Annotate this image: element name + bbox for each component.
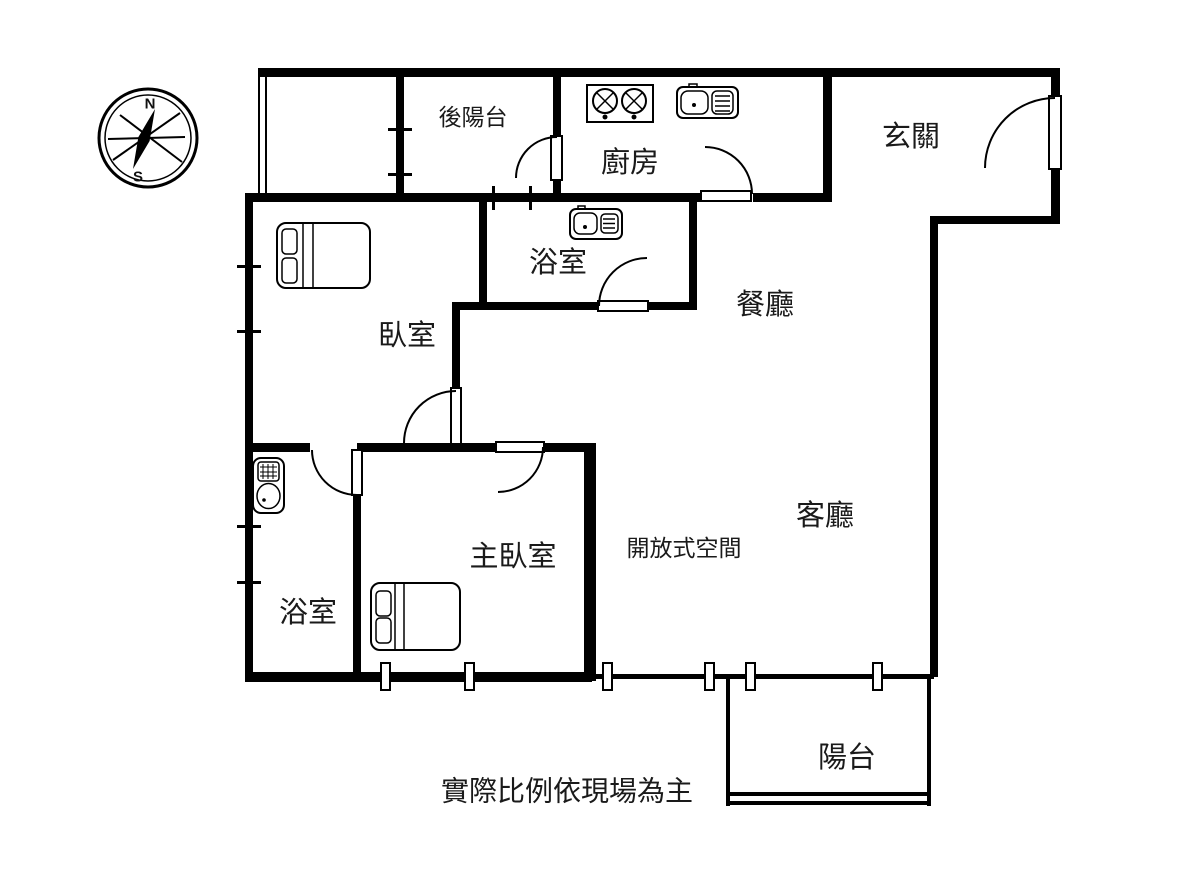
bed-icon-master-bedroom xyxy=(371,583,460,650)
room-label-open-space: 開放式空間 xyxy=(627,535,742,561)
room-label-bathroom-upper: 浴室 xyxy=(529,246,587,279)
stove-icon xyxy=(587,85,653,122)
door-master-bedroom xyxy=(496,442,544,492)
scale-disclaimer: 實際比例依現場為主 xyxy=(441,776,693,807)
door-kitchen xyxy=(701,147,752,201)
door-entrance xyxy=(985,96,1061,169)
bathroom-sink-icon xyxy=(570,206,622,239)
room-label-bedroom: 臥室 xyxy=(378,319,436,352)
compass-north-label: N xyxy=(145,96,156,113)
kitchen-sink-icon xyxy=(677,84,738,118)
compass-rose: N S xyxy=(99,89,197,187)
door-bathroom-lower xyxy=(312,450,362,495)
compass-south-label: S xyxy=(133,169,143,186)
door-back-balcony xyxy=(516,136,562,180)
room-label-kitchen: 廚房 xyxy=(601,146,659,179)
door-bedroom xyxy=(404,388,461,444)
floor-plan-drawing: N S 後陽台 廚房 玄關 浴室 餐廳 臥室 主臥室 開放式空間 客廳 浴室 陽… xyxy=(0,0,1195,896)
floor-plan-page: N S 後陽台 廚房 玄關 浴室 餐廳 臥室 主臥室 開放式空間 客廳 浴室 陽… xyxy=(0,0,1195,896)
room-label-entrance: 玄關 xyxy=(882,120,940,153)
room-label-dining-room: 餐廳 xyxy=(736,288,794,321)
back-balcony-window xyxy=(258,77,267,193)
room-label-bathroom-lower: 浴室 xyxy=(279,596,337,629)
door-bathroom-upper xyxy=(598,258,648,311)
room-label-master-bedroom: 主臥室 xyxy=(469,540,556,573)
room-label-living-room: 客廳 xyxy=(796,499,854,532)
room-label-balcony: 陽台 xyxy=(818,741,876,774)
toilet-icon xyxy=(253,458,284,513)
bed-icon-bedroom xyxy=(277,223,370,288)
room-label-back-balcony: 後陽台 xyxy=(439,104,508,130)
